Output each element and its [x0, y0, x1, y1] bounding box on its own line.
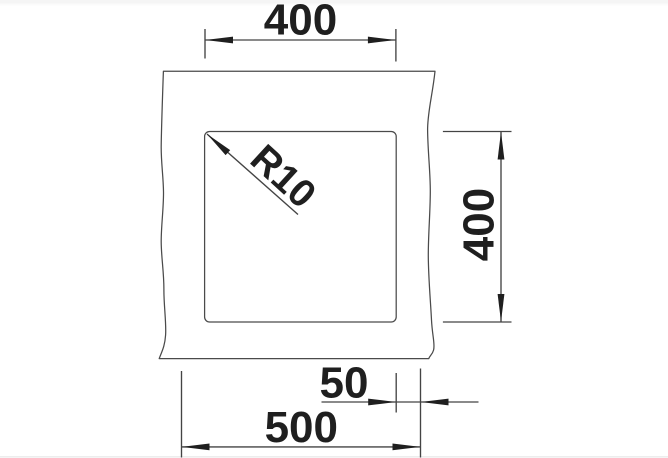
svg-text:400: 400: [264, 0, 337, 45]
svg-text:500: 500: [265, 403, 338, 452]
svg-text:400: 400: [455, 188, 504, 261]
svg-text:50: 50: [320, 358, 369, 407]
